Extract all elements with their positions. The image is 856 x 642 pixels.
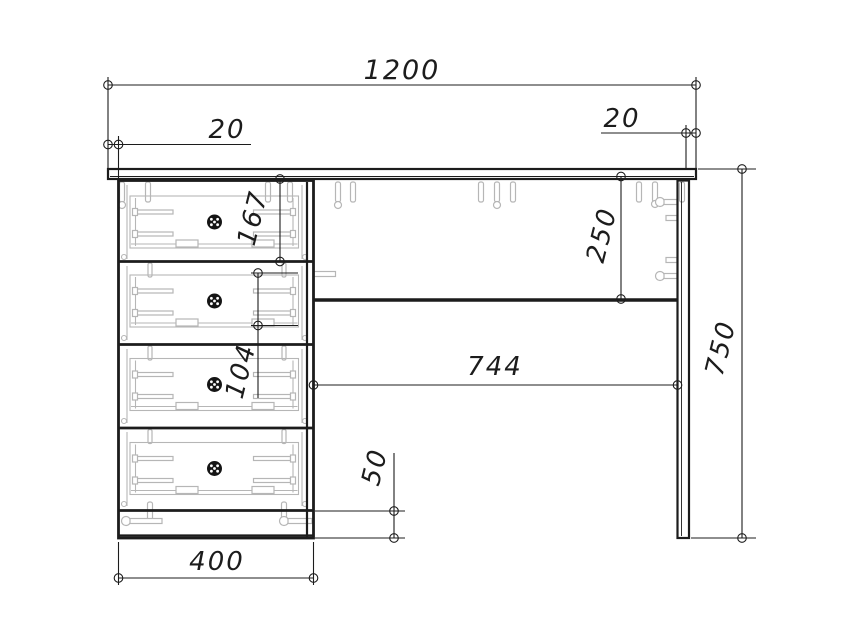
technical-drawing-canvas: 1200 20 20 167 104 bbox=[0, 0, 856, 642]
screw-icon bbox=[148, 430, 152, 444]
screw-icon bbox=[282, 346, 286, 360]
screw-icon bbox=[511, 182, 516, 202]
screw-icon bbox=[351, 182, 356, 202]
dimension-plinth-height: 50 bbox=[315, 445, 405, 542]
dimensions: 1200 20 20 167 104 bbox=[104, 55, 756, 585]
dimension-overall-height: 750 bbox=[691, 165, 756, 543]
screw-icon bbox=[479, 182, 484, 202]
dim-label-400: 400 bbox=[189, 547, 245, 577]
dim-label-1200: 1200 bbox=[364, 55, 441, 86]
screw-icon bbox=[336, 182, 341, 202]
cam-disc-icon bbox=[335, 202, 342, 209]
desk-assembly-drawing: 1200 20 20 167 104 bbox=[0, 0, 856, 642]
dimension-drawer-front-height: 167 bbox=[232, 175, 284, 266]
dimension-knee-space-width: 744 bbox=[309, 352, 682, 389]
cam-disc-icon bbox=[494, 202, 501, 209]
screw-icon bbox=[495, 182, 500, 202]
drawer-interior-4 bbox=[130, 443, 299, 495]
screw-icon bbox=[666, 216, 677, 221]
dim-label-744: 744 bbox=[467, 352, 523, 382]
screw-icon bbox=[288, 182, 293, 202]
dimension-back-panel-height: 250 bbox=[581, 172, 625, 303]
screw-icon bbox=[656, 198, 678, 207]
dim-label-750: 750 bbox=[700, 317, 743, 378]
drawer-interior-3 bbox=[130, 359, 299, 411]
screw-icon bbox=[656, 272, 678, 281]
dim-label-250: 250 bbox=[581, 204, 624, 265]
dimension-pedestal-width: 400 bbox=[114, 542, 318, 585]
drawer-interior-1 bbox=[130, 196, 299, 248]
screw-icon bbox=[314, 272, 336, 277]
dimension-overhang-left: 20 bbox=[104, 115, 251, 181]
screw-icon bbox=[146, 182, 151, 202]
screw-icon bbox=[680, 182, 685, 202]
tabletop bbox=[108, 169, 696, 179]
screw-icon bbox=[637, 182, 642, 202]
screw-icon bbox=[148, 346, 152, 360]
dimension-overhang-right: 20 bbox=[601, 104, 700, 168]
dim-label-104: 104 bbox=[220, 340, 263, 401]
drawer-interior-2 bbox=[130, 275, 299, 327]
screw-icon bbox=[666, 258, 677, 263]
side-panel-leg bbox=[678, 181, 690, 539]
screw-icon bbox=[282, 430, 286, 444]
dim-label-20-left: 20 bbox=[208, 115, 245, 145]
dim-label-20-right: 20 bbox=[603, 104, 640, 134]
screw-icon bbox=[120, 182, 125, 202]
dim-label-50: 50 bbox=[356, 445, 394, 488]
screw-icon bbox=[122, 517, 163, 526]
